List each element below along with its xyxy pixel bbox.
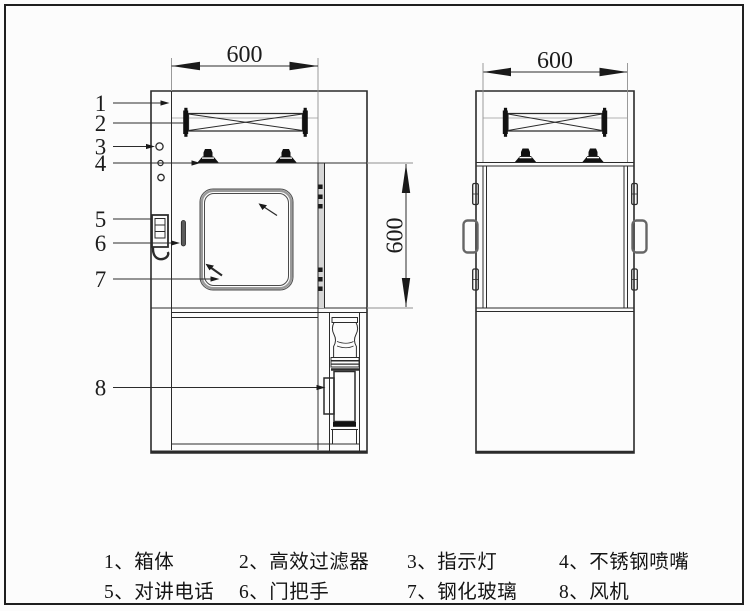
callout-leaders: [113, 100, 326, 390]
glass-reflection-marks: [206, 203, 278, 275]
front-view: 600: [95, 42, 413, 453]
front-height-label: 600: [383, 218, 409, 254]
nozzle-icon: [197, 149, 297, 163]
legend-item-intercom: 5、对讲电话: [104, 575, 214, 604]
legend-item-fan: 8、风机: [559, 575, 629, 604]
hepa-filter-icon: [172, 108, 318, 137]
side-handle-icon: [464, 221, 647, 253]
indicator-light-icon: [156, 143, 164, 181]
intercom-icon: [152, 215, 168, 259]
tempered-glass-window: [200, 189, 293, 290]
legend-item-indicator-light: 3、指示灯: [407, 545, 497, 574]
legend-item-tempered-glass: 7、钢化玻璃: [407, 575, 517, 604]
nozzle-icon-side: [515, 149, 605, 163]
side-view: 600: [464, 48, 647, 453]
legend-item-door-handle: 6、门把手: [239, 575, 329, 604]
front-width-label: 600: [227, 42, 263, 68]
side-width-label: 600: [537, 48, 573, 74]
pass-box-drawing-page: 600: [0, 0, 750, 611]
fan-assembly: [324, 313, 360, 452]
legend-item-box-body: 1、箱体: [104, 545, 174, 574]
callout-2: 2: [95, 111, 107, 136]
legend-item-steel-nozzle: 4、不锈钢喷嘴: [559, 545, 689, 574]
callout-5: 5: [95, 207, 107, 232]
hepa-filter-icon-side: [483, 108, 628, 137]
door-hinge-strip: [318, 163, 324, 308]
front-width-dimension: 600: [172, 42, 319, 70]
front-height-dimension: 600: [383, 164, 411, 307]
callout-7: 7: [95, 267, 107, 292]
legend-item-hepa-filter: 2、高效过滤器: [239, 545, 369, 574]
technical-drawing: 600: [0, 0, 750, 611]
side-body-outline: [476, 91, 634, 453]
side-width-dimension: 600: [483, 48, 628, 76]
flex-duct-icon: [332, 323, 335, 358]
hinge-icon: [473, 184, 638, 291]
callout-8: 8: [95, 376, 107, 401]
door-handle-icon: [181, 221, 185, 247]
fan-box-icon: [334, 372, 355, 422]
callout-4: 4: [95, 151, 107, 176]
callout-6: 6: [95, 231, 107, 256]
duct-collar: [332, 318, 358, 323]
